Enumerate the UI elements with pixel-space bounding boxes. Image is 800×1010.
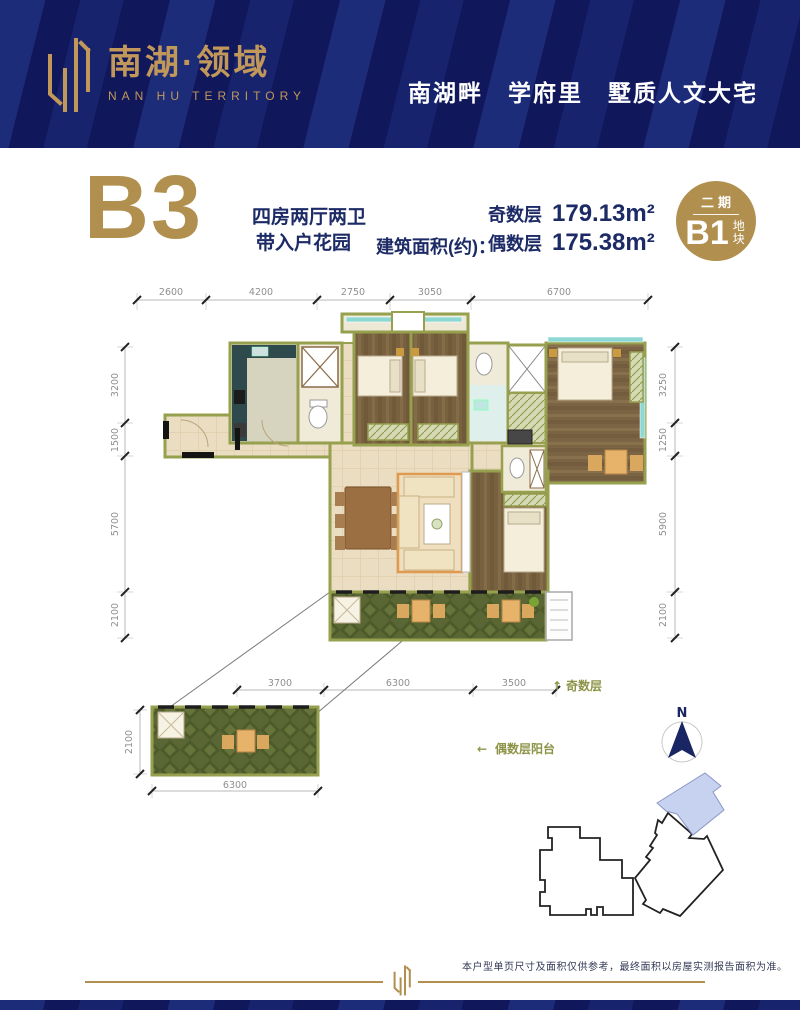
stove-icon (234, 390, 245, 404)
layout-line2: 带入户花园 (252, 231, 366, 257)
header-banner: 南湖·领域 NAN HU TERRITORY 南湖畔 学府里 墅质人文大宅 (0, 0, 800, 148)
odd-floor-annotation: 奇数层 (566, 678, 602, 693)
dim-right-4: 2100 (658, 603, 669, 627)
badge-suffix: 地块 (733, 220, 747, 246)
compass: N (662, 706, 702, 762)
disclaimer-text: 本户型单页尺寸及面积仅供参考，最终面积以房屋实测报告面积为准。 (462, 958, 788, 973)
dim-top-5: 6700 (547, 287, 571, 298)
chair-icon (630, 455, 643, 471)
even-floor-area: 175.38m² (552, 229, 655, 257)
wardrobe-icon (504, 494, 546, 506)
badge-phase: 二期 (697, 192, 735, 211)
header-tagline: 南湖畔 学府里 墅质人文大宅 (408, 74, 758, 108)
toilet-icon (309, 406, 327, 428)
dim-bottom-3: 3500 (502, 678, 526, 689)
washer-icon (508, 430, 532, 444)
master-bedroom (546, 337, 645, 483)
floorplan-canvas: 2600 4200 2750 3050 6700 3200 1500 5700 … (0, 270, 800, 940)
footer-rule-left (85, 981, 383, 983)
site-plan (540, 773, 724, 916)
dim-detail-left: 2100 (124, 706, 147, 778)
dim-left-1: 3200 (110, 373, 121, 397)
odd-floor-arrow-icon: ↑ (552, 679, 562, 693)
layout-line1: 四房两厅两卫 (252, 205, 366, 231)
bathroom-2 (468, 343, 508, 443)
wardrobe-icon (418, 424, 458, 440)
table-icon (502, 600, 520, 622)
badge-code: B1 (685, 217, 728, 249)
dim-top-1: 2600 (159, 287, 183, 298)
even-floor-annotation: 偶数层阳台 (495, 741, 555, 756)
bathroom-1 (298, 343, 342, 443)
odd-floor-row: 奇数层 179.13m² (488, 200, 655, 229)
compass-needle-icon (668, 721, 696, 758)
wardrobe-icon (630, 352, 643, 402)
dim-top-4: 3050 (418, 287, 442, 298)
balcony-detail: 2100 6300 (124, 706, 322, 798)
dim-right-3: 5900 (658, 512, 669, 536)
dim-left-3: 5700 (110, 512, 121, 536)
dim-detail-bottom: 6300 (148, 780, 322, 798)
even-floor-arrow-icon: ← (477, 742, 487, 756)
compass-north-label: N (677, 706, 688, 721)
dim-left-2: 1500 (110, 428, 121, 452)
dim-bottom-1: 3700 (268, 678, 292, 689)
wardrobe-icon (368, 424, 408, 440)
site-building-right (635, 813, 723, 916)
table-icon (237, 730, 255, 752)
footer-bar (0, 1000, 800, 1010)
nightstand-icon (396, 348, 404, 356)
even-floor-row: 偶数层 175.38m² (488, 229, 655, 258)
footer-logo-icon (389, 964, 413, 996)
flyer-page: 南湖·领域 NAN HU TERRITORY 南湖畔 学府里 墅质人文大宅 B3… (0, 0, 800, 1010)
dining-set (335, 487, 401, 550)
dim-right-2: 1250 (658, 428, 669, 452)
kitchen-sink-icon (252, 347, 268, 356)
dim-detail-height: 2100 (124, 730, 135, 754)
even-floor-label: 偶数层 (488, 230, 542, 256)
table-icon (605, 450, 627, 474)
brand-logo-icon (38, 34, 94, 114)
dim-chain-bottom: 3700 6300 3500 (233, 678, 560, 697)
dim-chain-top: 2600 4200 2750 3050 6700 (133, 287, 652, 310)
odd-floor-area: 179.13m² (552, 200, 655, 228)
dim-top-3: 2750 (341, 287, 365, 298)
sofa-icon (404, 550, 454, 570)
main-floorplan (163, 312, 645, 640)
dim-right-1: 3250 (658, 373, 669, 397)
ac-platform (546, 592, 572, 640)
footer-stripe-pattern (0, 1000, 800, 1010)
nightstand-icon (613, 349, 621, 357)
brand-name-cn: 南湖·领域 (108, 45, 306, 82)
nightstand-icon (411, 348, 419, 356)
basin-icon (474, 400, 488, 410)
unit-code: B3 (84, 170, 203, 247)
site-building-left (540, 827, 633, 915)
kitchen (230, 343, 298, 443)
nightstand-icon (549, 349, 557, 357)
upper-bay-window (342, 312, 468, 332)
dim-bottom-2: 6300 (386, 678, 410, 689)
sofa-set (398, 472, 470, 572)
area-label: 建筑面积(约)： (376, 233, 496, 259)
window-icon (548, 337, 643, 342)
brand-block: 南湖·领域 NAN HU TERRITORY (38, 34, 306, 114)
dim-chain-left: 3200 1500 5700 2100 (110, 343, 133, 642)
footer-rule-right (418, 981, 705, 983)
odd-floor-label: 奇数层 (488, 201, 542, 227)
phase-block-badge: 二期 B1 地块 (676, 181, 756, 261)
unit-layout: 四房两厅两卫 带入户花园 (252, 205, 366, 256)
dim-left-4: 2100 (110, 603, 121, 627)
area-values: 奇数层 179.13m² 偶数层 175.38m² (488, 200, 655, 258)
brand-name-en: NAN HU TERRITORY (108, 89, 306, 103)
toilet-icon (510, 458, 524, 478)
dim-top-2: 4200 (249, 287, 273, 298)
lower-balcony (330, 592, 546, 640)
plant-icon (529, 597, 539, 607)
table-icon (412, 600, 430, 622)
dining-table-icon (345, 487, 391, 549)
chair-icon (588, 455, 602, 471)
sofa-icon (404, 477, 454, 497)
tv-cabinet-icon (462, 472, 470, 572)
sofa-icon (399, 496, 419, 548)
toilet-icon (476, 353, 492, 375)
dim-detail-width: 6300 (223, 780, 247, 791)
hallway (342, 343, 354, 445)
dim-chain-right: 3250 1250 5900 2100 (658, 343, 683, 642)
elevator-shaft (508, 345, 546, 393)
